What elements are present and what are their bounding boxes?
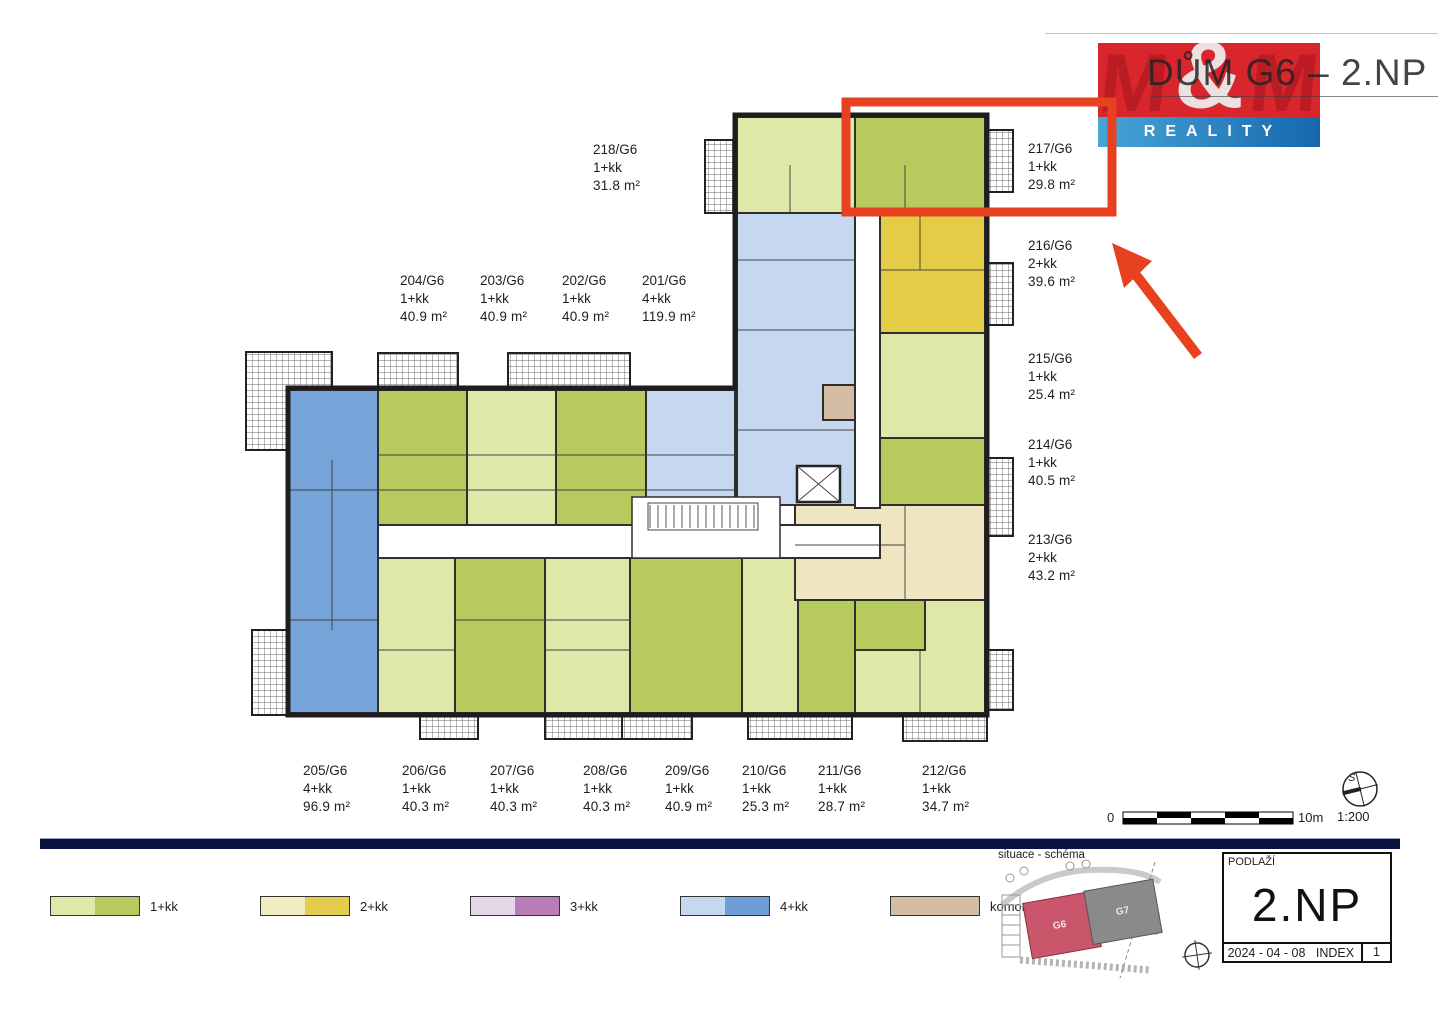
compass-south-label: S (1348, 772, 1355, 784)
title-underline (1150, 96, 1438, 97)
scale-bar (1123, 812, 1293, 824)
title-block: PODLAŽÍ 2.NP 2024 - 04 - 08 INDEX 1 (1222, 852, 1392, 963)
sheet-title: DŮM G6 – 2.NP (1147, 52, 1427, 94)
site-building-g6-label: G6 (1052, 919, 1067, 932)
site-plan-sketch (1002, 860, 1162, 978)
elevator (797, 466, 840, 502)
top-hairline (1045, 33, 1438, 34)
titleblock-header: PODLAŽÍ (1228, 856, 1275, 868)
titleblock-index-label: INDEX (1309, 946, 1361, 960)
north-compass-icon (1338, 767, 1382, 811)
floorplan-sheet: DŮM G6 – 2.NP M M & REALITY 201/G64+kk11… (0, 0, 1440, 1014)
titleblock-floor: 2.NP (1224, 878, 1390, 932)
titleblock-compass-icon (1180, 938, 1214, 972)
titleblock-date: 2024 - 04 - 08 (1224, 946, 1309, 960)
logo-reality-banner: REALITY (1098, 117, 1320, 147)
site-building-g7-label: G7 (1115, 905, 1130, 918)
titleblock-bottom-row: 2024 - 04 - 08 INDEX 1 (1224, 942, 1390, 961)
titleblock-index-value: 1 (1361, 944, 1390, 961)
